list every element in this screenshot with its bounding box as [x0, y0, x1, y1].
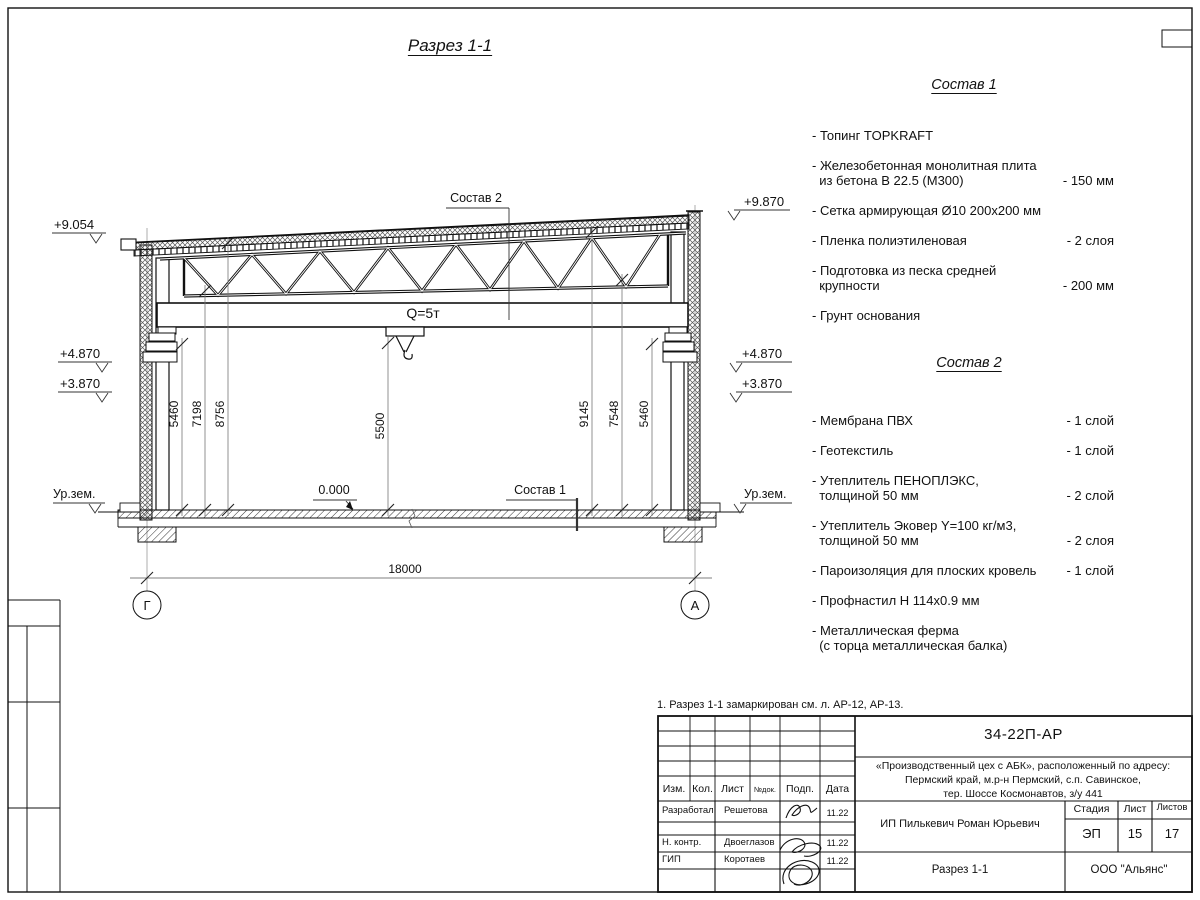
dim-left-2: 7198 [190, 400, 204, 427]
stage-label: Стадия [1065, 803, 1118, 815]
elevation-right-bracket: +3.870 [742, 377, 782, 391]
list-item: - Пленка полиэтиленовая - 2 слоя [812, 233, 1114, 248]
elevation-left-bracket: +3.870 [60, 377, 100, 391]
dim-right-1: 9145 [577, 400, 591, 427]
drawing-sheet: 5460 7198 8756 5500 9145 7548 5460 Г А Р… [0, 0, 1200, 900]
axis-letter-left: Г [143, 598, 150, 613]
list-item: - Профнастил Н 114х0.9 мм [812, 593, 1114, 608]
list-item: - Грунт основания [812, 308, 1114, 323]
sostav1-list: - Топинг TOPKRAFT - Железобетонная монол… [812, 128, 1114, 338]
client-name: ИП Пилькевич Роман Юрьевич [858, 818, 1062, 831]
span-dimension [130, 572, 712, 619]
crane-capacity-label: Q=5т [378, 306, 468, 321]
sheets-total: 17 [1152, 827, 1192, 842]
crane-brackets [143, 333, 697, 362]
sostav1-ref-label: Состав 1 [504, 484, 576, 497]
wall-left [140, 245, 152, 520]
list-item: - Подготовка из песка средней крупности … [812, 263, 1114, 293]
row-date: 11.22 [820, 808, 855, 818]
list-item: - Утеплитель Эковер Y=100 кг/м3, толщино… [812, 518, 1114, 548]
dimension-lines [182, 226, 652, 516]
company-name: ООО "Альянс" [1068, 864, 1190, 877]
list-item: - Мембрана ПВХ - 1 слой [812, 413, 1114, 428]
elevation-left-ridge: +9.054 [54, 218, 94, 232]
row-name: Коротаев [724, 855, 765, 866]
sheet-title: Разрез 1-1 [858, 864, 1062, 877]
row-role: Н. контр. [662, 838, 701, 849]
dim-right-3: 5460 [637, 400, 651, 427]
elevation-right-ridge: +9.870 [744, 195, 784, 209]
code-box [1162, 30, 1192, 47]
list-item: - Утеплитель ПЕНОПЛЭКС, толщиной 50 мм -… [812, 473, 1114, 503]
col-izm: Изм. [658, 783, 690, 795]
list-item: - Топинг TOPKRAFT [812, 128, 1114, 143]
side-stamp [8, 600, 60, 892]
row-name: Решетова [724, 806, 768, 817]
row-role: ГИП [662, 855, 681, 866]
span-dim-label: 18000 [370, 563, 440, 576]
list-item: - Железобетонная монолитная плита из бет… [812, 158, 1114, 188]
sheet-label: Лист [1118, 803, 1152, 815]
grid-axes [147, 205, 695, 591]
zero-level-label: 0.000 [312, 484, 356, 497]
sostav1-heading: Состав 1 [864, 78, 1064, 93]
row-date: 11.22 [820, 856, 855, 866]
col-kol: Кол. [690, 783, 715, 795]
dim-left-1: 5460 [167, 400, 181, 427]
signatures [780, 805, 821, 885]
floor-slab [118, 509, 716, 528]
col-data: Дата [820, 783, 855, 795]
foundation-left [138, 527, 176, 542]
drawing-note: 1. Разрез 1-1 замаркирован см. л. АР-12,… [657, 700, 903, 712]
col-list: Лист [715, 783, 750, 795]
axis-letter-right: А [691, 598, 700, 613]
drawing-title: Разрез 1-1 [370, 37, 530, 55]
row-role: Разработал [662, 806, 714, 817]
sheet-number: 15 [1118, 827, 1152, 842]
crane-trolley [386, 327, 424, 336]
row-date: 11.22 [820, 838, 855, 848]
ground-level-label-right: Ур.зем. [744, 488, 786, 501]
stage-value: ЭП [1065, 827, 1118, 842]
project-description: «Производственный цех с АБК», расположен… [858, 759, 1188, 801]
foundation-right [664, 527, 702, 542]
sostav2-list: - Мембрана ПВХ - 1 слой - Геотекстиль - … [812, 413, 1114, 668]
sheets-label: Листов [1152, 803, 1192, 814]
ground-level-label-left: Ур.зем. [53, 488, 95, 501]
sostav2-ref-label: Состав 2 [444, 192, 508, 205]
sostav2-heading: Состав 2 [869, 356, 1069, 371]
dim-center: 5500 [373, 412, 387, 439]
elevation-right-crane: +4.870 [742, 347, 782, 361]
elevation-left-crane: +4.870 [60, 347, 100, 361]
dim-right-2: 7548 [607, 400, 621, 427]
doc-code: 34-22П-АР [855, 726, 1192, 743]
wall-right [688, 212, 700, 520]
list-item: - Пароизоляция для плоских кровель - 1 с… [812, 563, 1114, 578]
dim-left-3: 8756 [213, 400, 227, 427]
list-item: - Геотекстиль - 1 слой [812, 443, 1114, 458]
list-item: - Сетка армирующая Ø10 200х200 мм [812, 203, 1114, 218]
building-structure [98, 211, 744, 542]
dimension-ticks [176, 226, 658, 516]
column-left [156, 258, 169, 510]
col-podp: Подп. [780, 783, 820, 795]
column-right [671, 232, 684, 510]
col-ndok: №док. [750, 786, 780, 795]
list-item: - Металлическая ферма (с торца металличе… [812, 623, 1114, 653]
row-name: Двоеглазов [724, 838, 775, 849]
crane-hook [396, 336, 414, 359]
eaves-cap [121, 239, 136, 250]
